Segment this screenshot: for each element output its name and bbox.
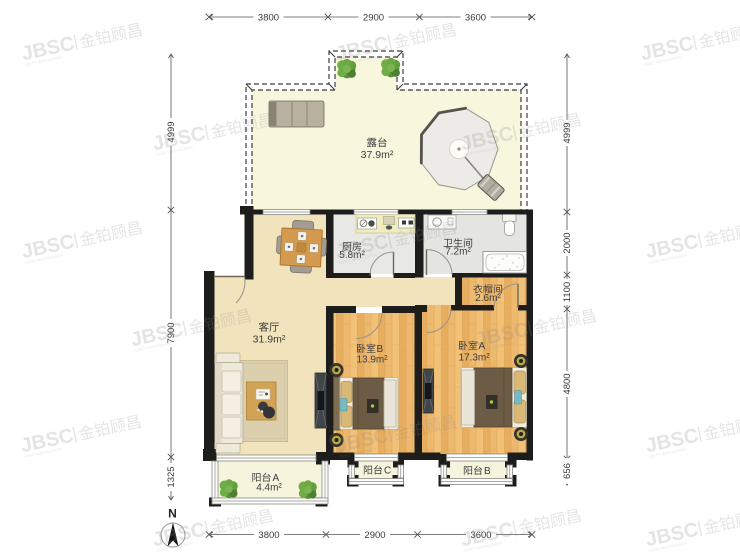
svg-text:2.6m²: 2.6m²	[475, 293, 501, 304]
svg-text:31.9m²: 31.9m²	[253, 334, 286, 346]
svg-text:37.9m²: 37.9m²	[361, 149, 394, 161]
svg-text:17.3m²: 17.3m²	[458, 353, 490, 364]
svg-text:2900: 2900	[363, 13, 384, 24]
svg-text:4800: 4800	[562, 373, 573, 394]
svg-text:7.2m²: 7.2m²	[445, 247, 471, 258]
svg-text:2900: 2900	[364, 530, 385, 541]
svg-text:656: 656	[562, 463, 573, 479]
svg-text:N: N	[168, 507, 177, 521]
svg-text:3600: 3600	[465, 13, 486, 24]
svg-text:1100: 1100	[562, 282, 573, 302]
svg-text:4999: 4999	[562, 122, 573, 143]
svg-text:C: C	[384, 466, 391, 477]
svg-text:B: B	[484, 466, 491, 477]
svg-text:3800: 3800	[258, 530, 279, 541]
svg-text:13.9m²: 13.9m²	[356, 355, 388, 366]
svg-text:B: B	[377, 344, 384, 355]
svg-text:3800: 3800	[258, 13, 279, 24]
svg-text:4.4m²: 4.4m²	[256, 483, 282, 494]
svg-text:1325: 1325	[166, 466, 177, 487]
svg-text:2000: 2000	[562, 232, 573, 253]
